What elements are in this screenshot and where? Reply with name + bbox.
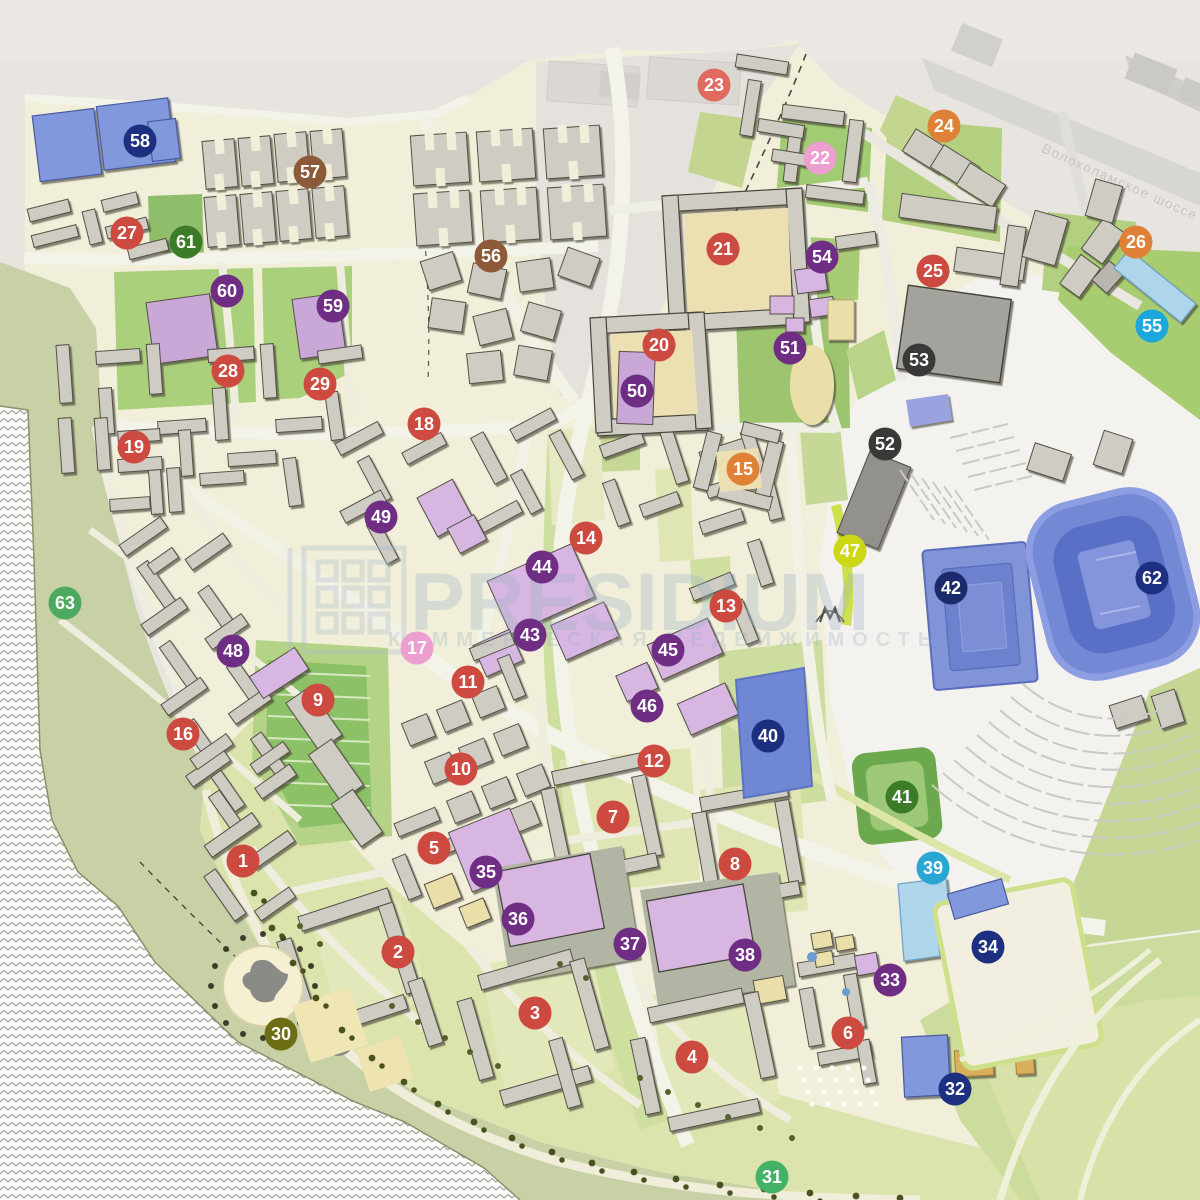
svg-text:20: 20	[649, 335, 669, 355]
svg-text:48: 48	[223, 641, 243, 661]
svg-text:60: 60	[217, 281, 237, 301]
svg-text:27: 27	[117, 223, 137, 243]
svg-text:34: 34	[978, 937, 998, 957]
svg-text:1: 1	[238, 851, 248, 871]
svg-text:9: 9	[313, 690, 323, 710]
svg-text:39: 39	[923, 858, 943, 878]
svg-text:6: 6	[843, 1023, 853, 1043]
svg-text:53: 53	[909, 350, 929, 370]
svg-text:3: 3	[530, 1003, 540, 1023]
svg-text:33: 33	[880, 970, 900, 990]
svg-text:22: 22	[810, 148, 830, 168]
svg-text:8: 8	[730, 854, 740, 874]
svg-text:54: 54	[812, 247, 832, 267]
svg-text:24: 24	[934, 116, 954, 136]
svg-text:37: 37	[620, 934, 640, 954]
svg-text:5: 5	[429, 838, 439, 858]
svg-text:43: 43	[520, 625, 540, 645]
svg-text:13: 13	[716, 596, 736, 616]
svg-text:11: 11	[458, 672, 477, 692]
svg-text:57: 57	[300, 162, 320, 182]
svg-text:51: 51	[780, 338, 800, 358]
svg-text:63: 63	[55, 593, 75, 613]
svg-text:40: 40	[758, 726, 778, 746]
svg-text:21: 21	[713, 239, 733, 259]
svg-text:32: 32	[945, 1079, 965, 1099]
svg-text:50: 50	[627, 381, 647, 401]
svg-text:59: 59	[323, 296, 343, 316]
svg-text:41: 41	[892, 787, 912, 807]
svg-text:18: 18	[414, 414, 434, 434]
svg-text:42: 42	[941, 578, 961, 598]
svg-text:62: 62	[1142, 568, 1162, 588]
svg-text:4: 4	[687, 1047, 697, 1067]
svg-text:46: 46	[637, 696, 657, 716]
svg-text:49: 49	[371, 507, 391, 527]
svg-text:31: 31	[762, 1167, 782, 1187]
svg-text:16: 16	[173, 724, 193, 744]
svg-text:10: 10	[451, 759, 471, 779]
svg-text:23: 23	[704, 75, 724, 95]
svg-text:47: 47	[840, 541, 860, 561]
svg-text:12: 12	[644, 751, 664, 771]
svg-text:38: 38	[735, 945, 755, 965]
svg-text:2: 2	[393, 942, 403, 962]
svg-text:58: 58	[130, 131, 150, 151]
svg-text:56: 56	[481, 246, 501, 266]
svg-text:52: 52	[875, 434, 895, 454]
svg-text:35: 35	[476, 862, 496, 882]
svg-text:30: 30	[271, 1024, 291, 1044]
svg-text:19: 19	[124, 437, 144, 457]
svg-text:36: 36	[508, 909, 528, 929]
svg-text:55: 55	[1142, 316, 1162, 336]
svg-text:28: 28	[218, 361, 238, 381]
svg-text:7: 7	[608, 807, 618, 827]
svg-text:17: 17	[407, 638, 427, 658]
svg-text:45: 45	[658, 640, 678, 660]
svg-text:61: 61	[176, 232, 196, 252]
svg-text:26: 26	[1126, 232, 1146, 252]
svg-text:25: 25	[923, 261, 943, 281]
svg-text:15: 15	[733, 459, 753, 479]
svg-text:29: 29	[310, 374, 330, 394]
svg-text:44: 44	[532, 557, 552, 577]
svg-text:14: 14	[576, 528, 596, 548]
